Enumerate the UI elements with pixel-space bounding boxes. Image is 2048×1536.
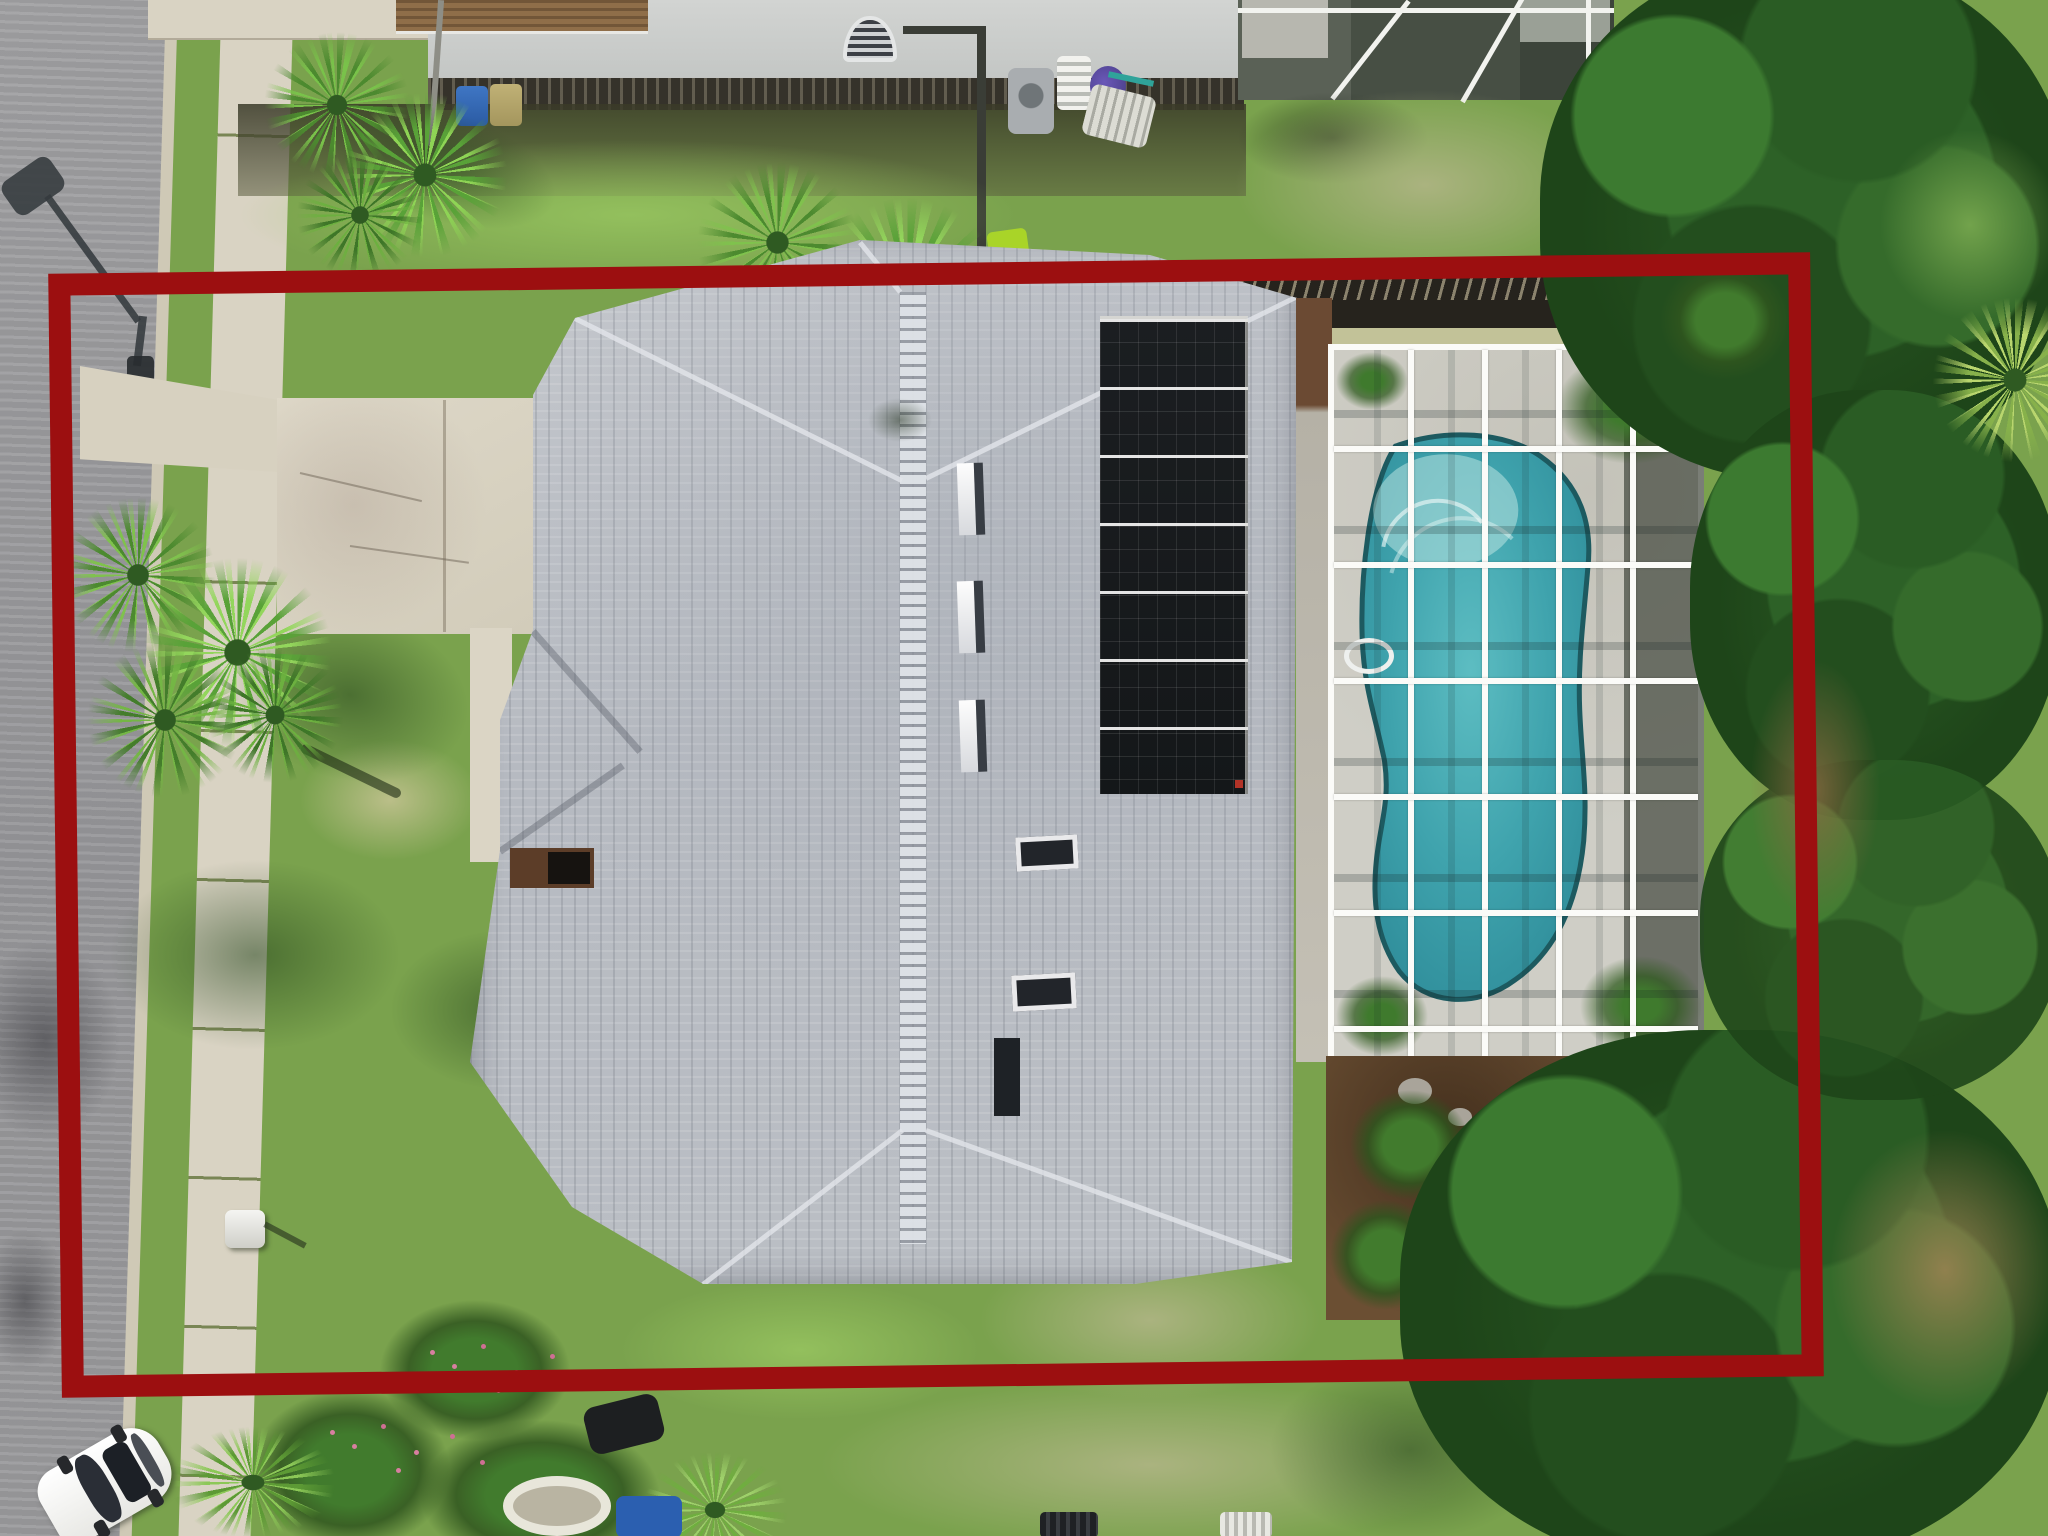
enclosure-beam [1460, 0, 1524, 103]
flowers [330, 1430, 335, 1435]
neighbor-pool-enclosure [1238, 0, 1614, 100]
trash-bin-tan [490, 84, 522, 126]
wicker-chair [503, 1476, 611, 1536]
neighbor-roof [396, 0, 648, 34]
enclosure-beam [1330, 0, 1410, 100]
fence-rail [903, 26, 979, 34]
ac-unit [1008, 68, 1054, 134]
grass-patch [1880, 130, 2048, 320]
property-boundary-outline [48, 252, 1824, 1397]
palm-tree [295, 150, 425, 280]
enclosure-beam [1238, 8, 1614, 13]
neighbor-deck [1520, 0, 1610, 42]
white-lounge-chair [1220, 1512, 1272, 1536]
palm-sapling [168, 1425, 338, 1536]
grill [581, 1392, 666, 1457]
dry-straw-patch [1830, 1130, 2048, 1410]
dark-lounge-chair [1040, 1512, 1098, 1536]
patio-chair [1057, 56, 1091, 110]
aerial-photo [0, 0, 2048, 1536]
blue-object [616, 1496, 682, 1536]
